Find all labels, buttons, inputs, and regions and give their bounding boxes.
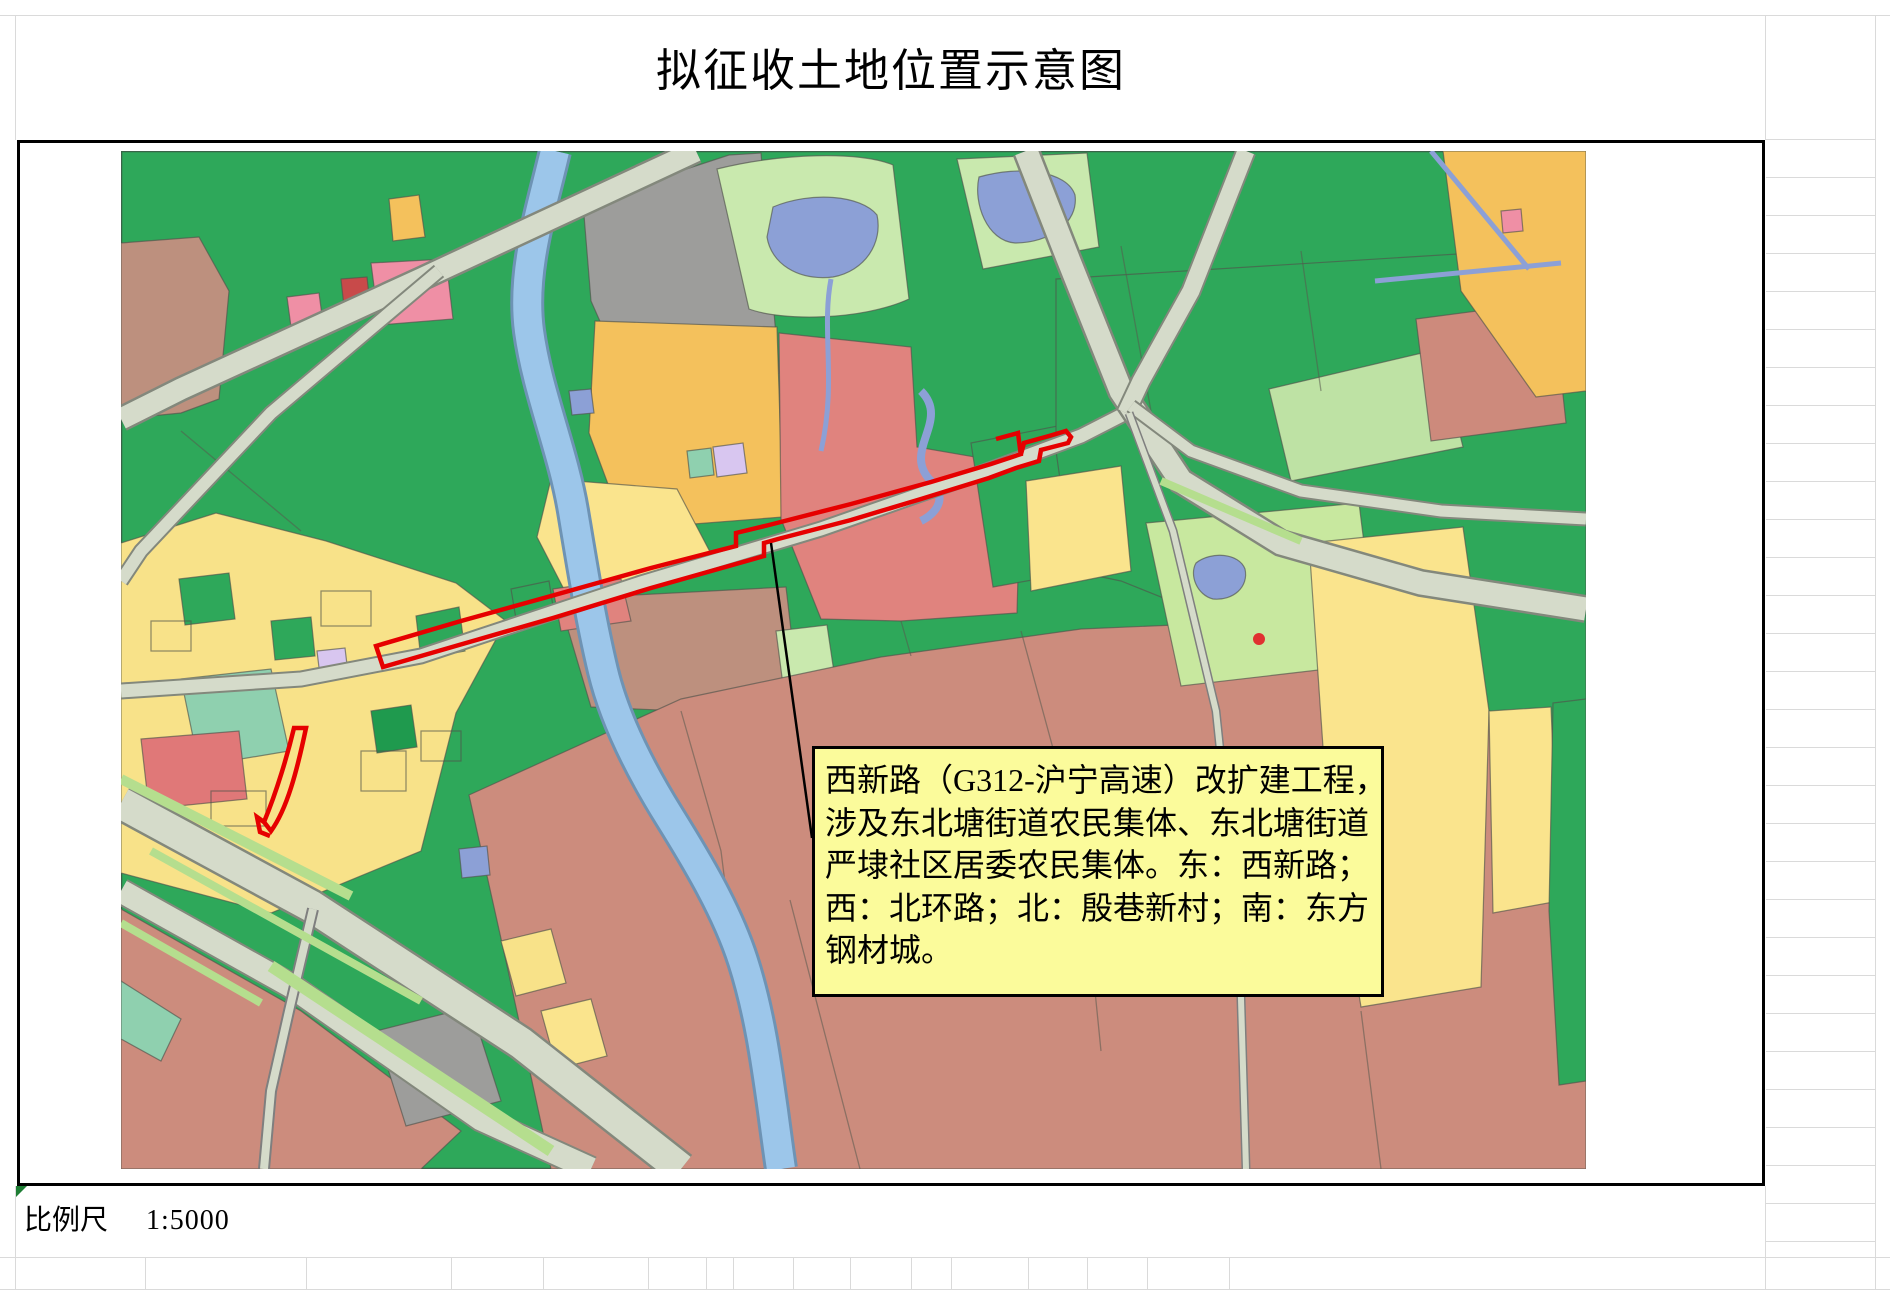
annotation-line: 西新路（G312-沪宁高速）改扩建工程， [825, 759, 1371, 802]
annotation-line: 钢材城。 [825, 929, 1371, 972]
landuse-map-canvas[interactable] [121, 151, 1586, 1169]
scale-value: 1:5000 [146, 1205, 230, 1236]
gridline-left-upper [15, 15, 16, 140]
spreadsheet-cells-right-column[interactable] [1766, 139, 1875, 1243]
spreadsheet-map-document: 拟征收土地位置示意图 [0, 0, 1890, 1306]
gridline-rightcol-a-upper [1765, 15, 1766, 140]
gridline-top [0, 15, 1890, 16]
gridline-rightcol-b [1875, 15, 1876, 1289]
gridline-bottomrow-bottom [0, 1289, 1890, 1290]
scale-label: 比例尺 [24, 1205, 108, 1236]
scale-text: 比例尺1:5000 [24, 1198, 230, 1238]
annotation-box[interactable]: 西新路（G312-沪宁高速）改扩建工程， 涉及东北塘街道农民集体、东北塘街道 严… [812, 746, 1384, 997]
page-title: 拟征收土地位置示意图 [17, 34, 1765, 98]
annotation-line: 涉及东北塘街道农民集体、东北塘街道 [825, 802, 1371, 845]
annotation-line: 严埭社区居委农民集体。东：西新路； [825, 844, 1371, 887]
annotation-line: 西：北环路；北：殷巷新村；南：东方 [825, 887, 1371, 930]
spreadsheet-cells-bottom-row[interactable] [0, 1258, 1890, 1289]
green-corner-marker [16, 1186, 27, 1197]
